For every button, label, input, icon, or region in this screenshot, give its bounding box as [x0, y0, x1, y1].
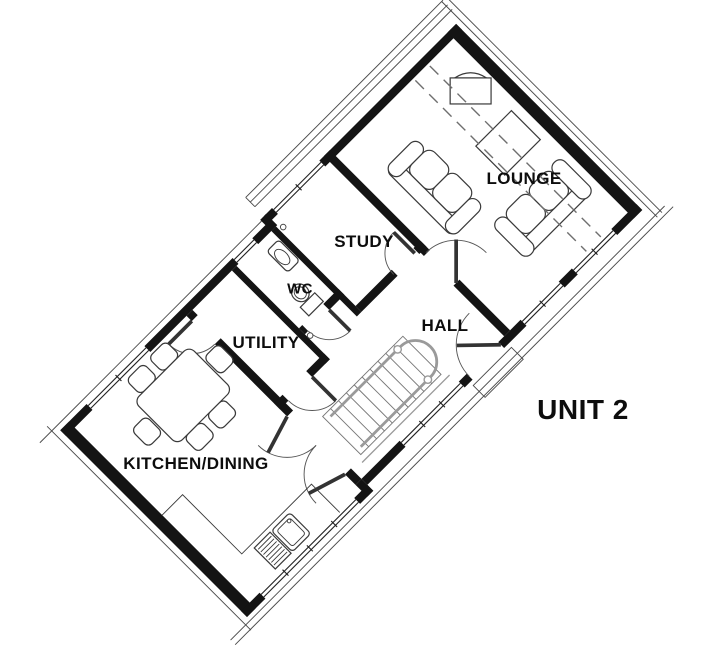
- tv-cabinet: [450, 73, 491, 104]
- floor-plan-canvas: LOUNGE STUDY WC HALL UTILITY KITCHEN/DIN…: [0, 0, 709, 652]
- utility-door: [288, 377, 335, 424]
- floor-plan-drawing: [0, 0, 709, 652]
- staircase: [319, 328, 454, 463]
- exterior-site-lines: [17, 0, 675, 646]
- kitchen-counter: [162, 425, 340, 603]
- room-label-lounge: LOUNGE: [486, 169, 561, 189]
- room-label-utility: UTILITY: [232, 333, 299, 353]
- study-window: [272, 161, 325, 214]
- hall-window: [400, 382, 465, 447]
- coffee-table: [476, 111, 540, 175]
- kitchen-hall-double-doors: [258, 416, 345, 503]
- wc-window: [234, 240, 256, 262]
- door-stop: [279, 223, 287, 231]
- unit-title: UNIT 2: [537, 394, 629, 426]
- wash-basin: [267, 240, 300, 273]
- room-label-study: STUDY: [334, 232, 394, 252]
- kitchen-sink: [254, 512, 311, 569]
- room-label-kitchen-dining: KITCHEN/DINING: [123, 454, 268, 474]
- room-label-hall: HALL: [422, 316, 469, 336]
- handrail: [331, 332, 446, 447]
- room-label-wc: WC: [287, 281, 313, 298]
